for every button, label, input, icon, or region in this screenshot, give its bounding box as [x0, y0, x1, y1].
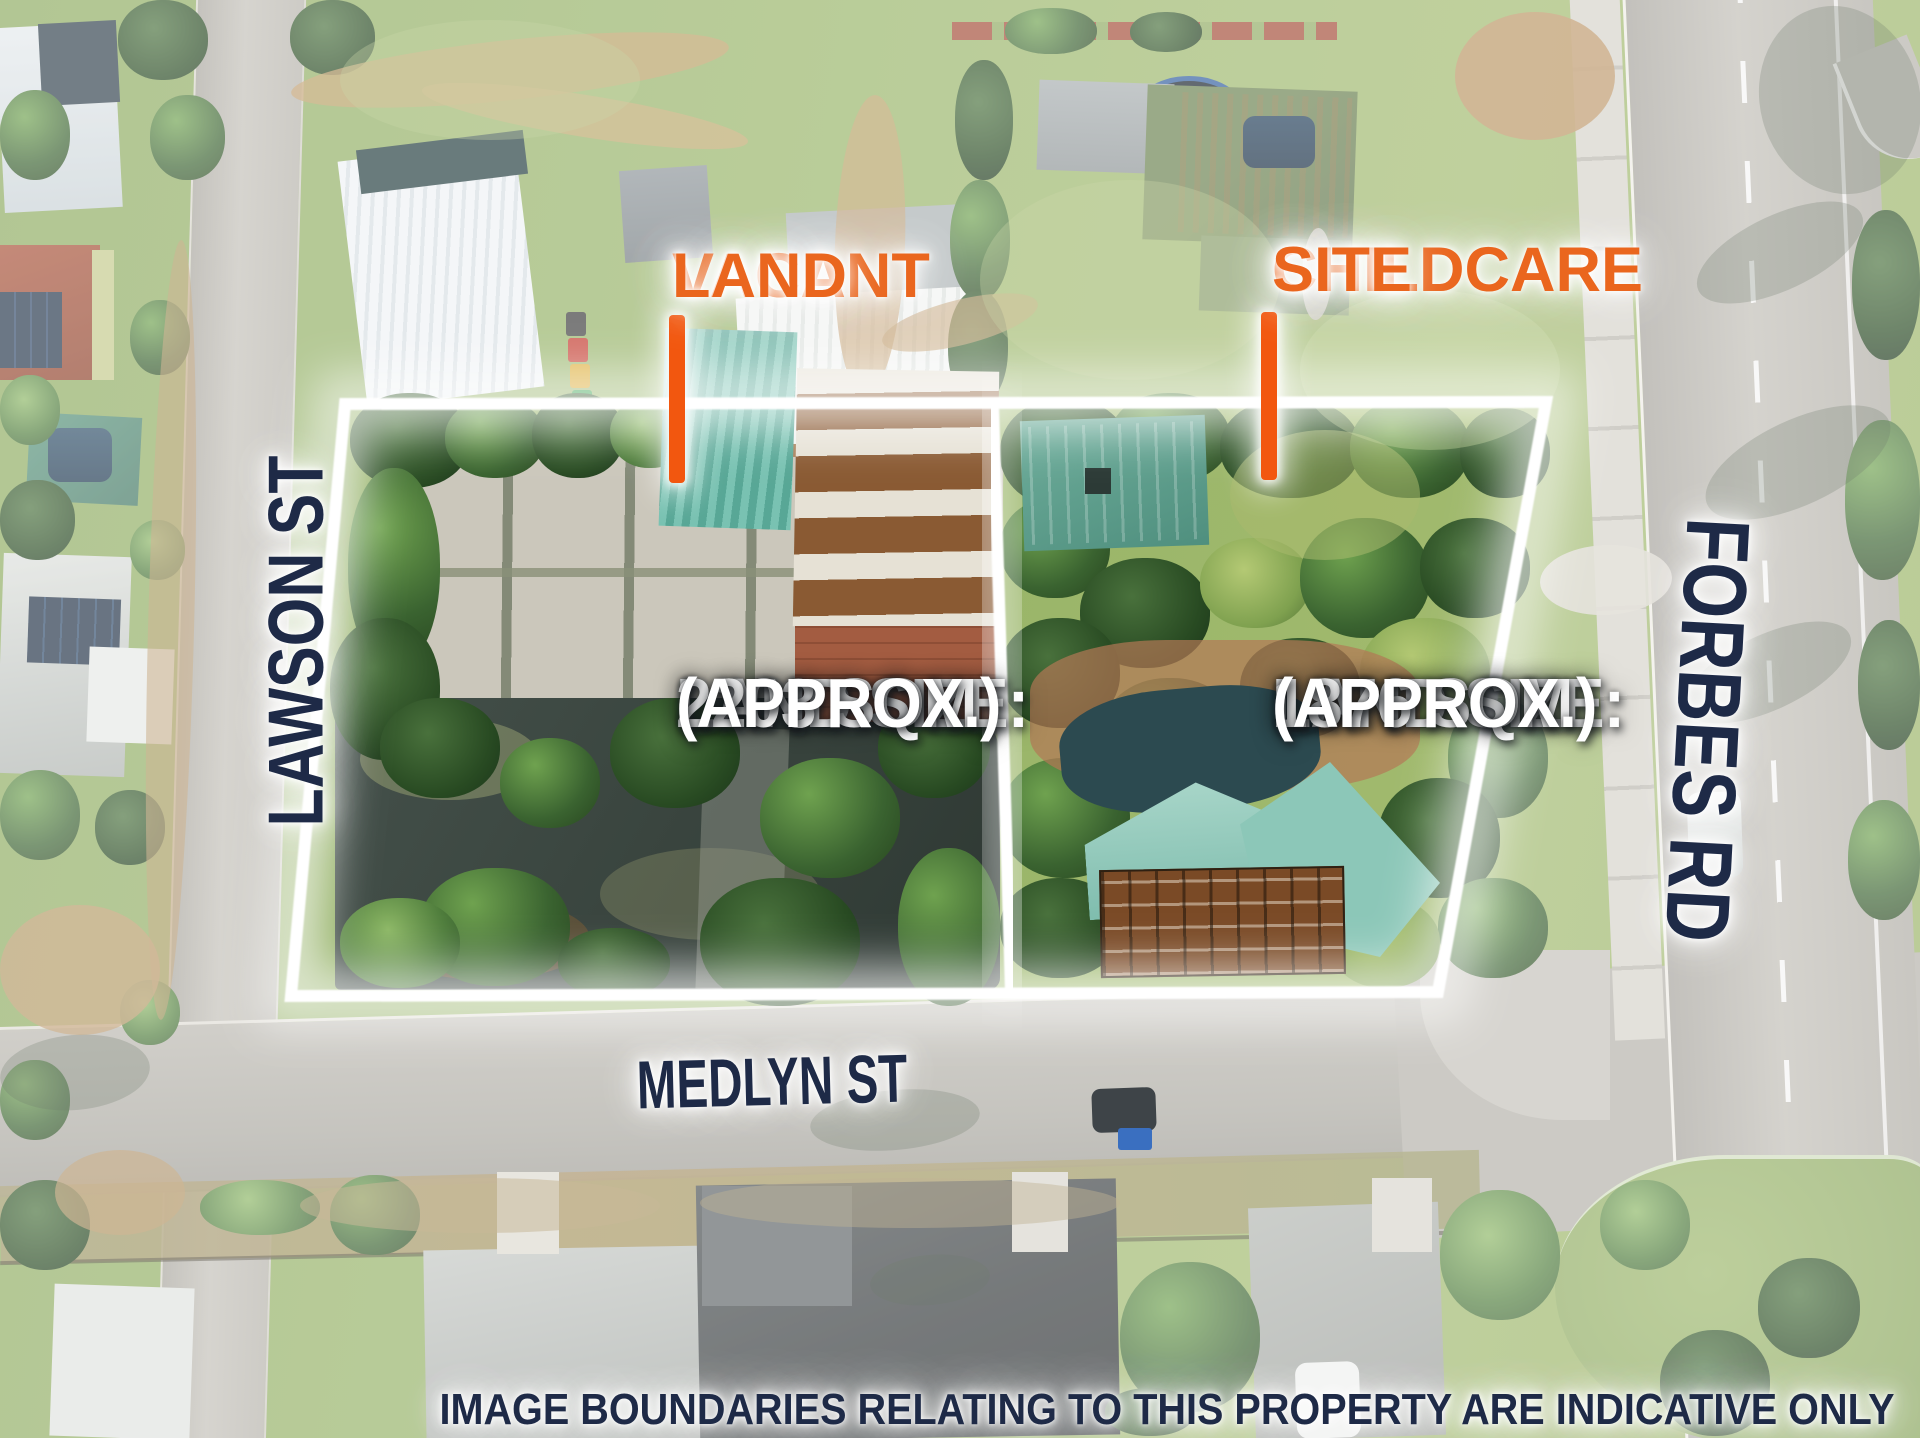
ground-patch [1300, 290, 1560, 450]
tree-canopy [1858, 620, 1920, 750]
tree-canopy [1005, 8, 1097, 54]
tree-canopy [1440, 1190, 1560, 1320]
lawson-st-street-label: LAWSON ST [251, 456, 342, 827]
ground-patch [55, 1150, 185, 1235]
tree-canopy [380, 698, 500, 798]
tree-canopy [1848, 800, 1920, 920]
scaffolding [1099, 866, 1346, 978]
tree-canopy [1130, 12, 1202, 52]
tree-canopy [760, 758, 900, 878]
left-parcel-size-line3: (APPROX.) [676, 672, 1000, 734]
tree-shadow [0, 1029, 153, 1117]
ground-patch [700, 1178, 1120, 1228]
tree-canopy [558, 928, 670, 998]
tree-canopy [1758, 1258, 1860, 1358]
tree-canopy [1420, 518, 1530, 618]
tree-canopy [1438, 878, 1548, 978]
tree-shadow [1738, 0, 1920, 212]
tree-canopy [500, 738, 600, 828]
tree-canopy [340, 898, 460, 988]
tree-canopy [0, 480, 75, 560]
childcare-site-label-line2: SITE [1272, 238, 1412, 303]
right-parcel-size-line3: (APPROX.) [1272, 672, 1596, 734]
tree-canopy [0, 375, 60, 445]
vacant-land-marker-line [669, 315, 685, 483]
tree-canopy [445, 398, 545, 478]
ground-patch [1455, 12, 1615, 140]
chimney [1085, 468, 1111, 494]
wheelie-bin [1118, 1128, 1152, 1150]
medlyn-st-street-label: MEDLYN ST [636, 1039, 909, 1124]
ground-patch [340, 20, 640, 140]
tree-canopy [955, 60, 1013, 180]
tree-shadow [1683, 180, 1878, 324]
ground-patch [300, 1178, 660, 1233]
construction-frame-tarps [793, 368, 999, 629]
disclaimer-text: IMAGE BOUNDARIES RELATING TO THIS PROPER… [439, 1385, 1894, 1435]
tree-shadow [868, 1250, 992, 1310]
tree-canopy [118, 0, 208, 80]
vacant-land-label-line2: LAND [672, 244, 847, 309]
roof-ridges [1028, 421, 1202, 545]
ground-patch [1539, 542, 1674, 618]
aerial-photo-scene: VACANT LAND CHILDCARE SITE LAND SIZE: 22… [0, 0, 1920, 1438]
tree-canopy [0, 90, 70, 180]
tree-canopy [1600, 1180, 1690, 1270]
tree-canopy [0, 770, 80, 860]
tree-canopy [700, 878, 860, 1006]
tree-canopy [1852, 210, 1920, 360]
tree-canopy [150, 95, 225, 180]
ground-patch [0, 905, 160, 1035]
childcare-site-marker-line [1261, 312, 1277, 480]
ground-patch [980, 180, 1280, 380]
ground-patch [1230, 430, 1420, 560]
car [1091, 1087, 1156, 1133]
tree-canopy [898, 848, 1000, 1006]
